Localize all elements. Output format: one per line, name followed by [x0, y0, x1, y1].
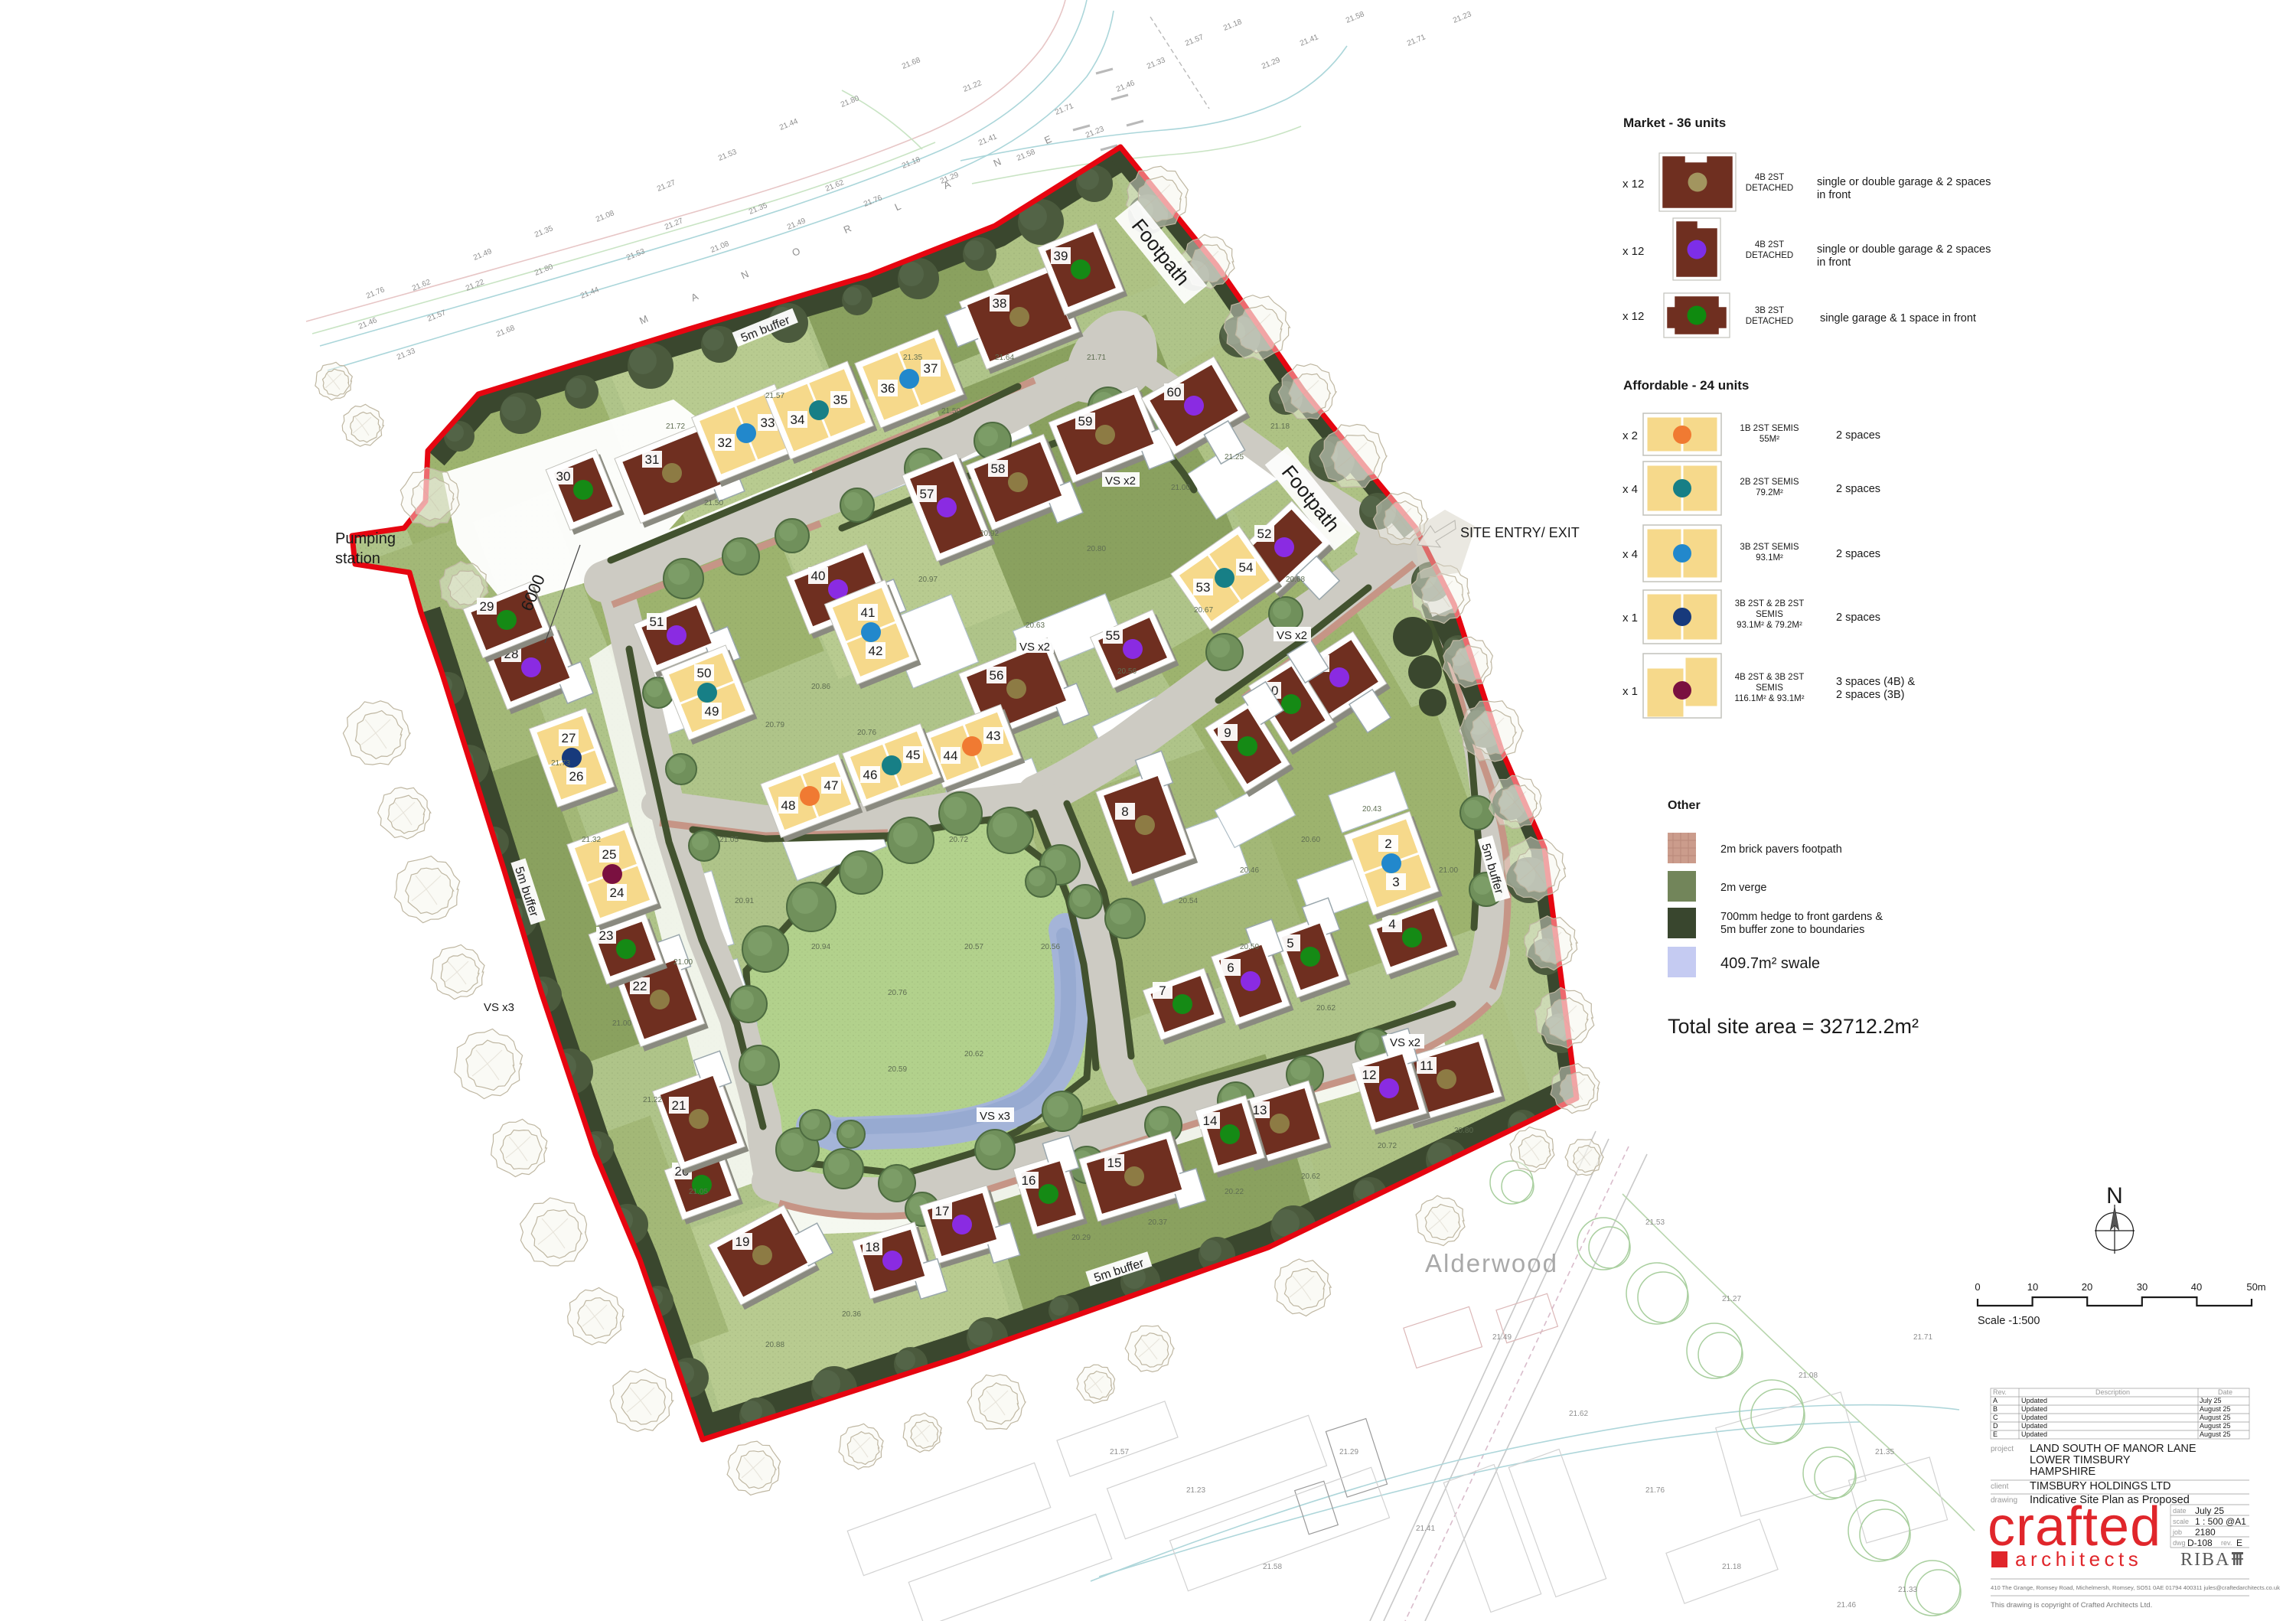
svg-text:x 4: x 4	[1623, 483, 1638, 496]
svg-text:20: 20	[2082, 1281, 2092, 1293]
svg-text:RIBA: RIBA	[2180, 1550, 2230, 1570]
svg-text:21.08: 21.08	[595, 209, 616, 224]
svg-text:5: 5	[1287, 936, 1293, 951]
svg-text:20.22: 20.22	[1225, 1188, 1244, 1196]
svg-text:48: 48	[781, 798, 796, 813]
svg-text:VS x2: VS x2	[1390, 1036, 1420, 1049]
svg-text:20.43: 20.43	[1362, 805, 1381, 814]
svg-text:August 25: August 25	[2200, 1405, 2231, 1413]
svg-text:21.00: 21.00	[673, 958, 693, 967]
svg-text:2 spaces: 2 spaces	[1836, 483, 1880, 495]
svg-text:21.25: 21.25	[1225, 453, 1244, 462]
svg-text:21.49: 21.49	[472, 247, 494, 263]
svg-text:4B 2ST: 4B 2ST	[1755, 240, 1784, 250]
svg-text:July 25: July 25	[2195, 1505, 2224, 1516]
svg-text:21.18: 21.18	[1222, 18, 1244, 33]
svg-text:VS x2: VS x2	[1105, 475, 1136, 488]
svg-text:24: 24	[610, 886, 625, 900]
svg-text:4B 2ST & 3B 2ST: 4B 2ST & 3B 2ST	[1735, 673, 1805, 682]
svg-text:20.56: 20.56	[1117, 667, 1137, 676]
svg-text:in front: in front	[1817, 256, 1851, 269]
svg-text:700mm hedge to front gardens &: 700mm hedge to front gardens &	[1720, 911, 1883, 923]
svg-text:LOWER TIMSBURY: LOWER TIMSBURY	[2030, 1454, 2131, 1466]
svg-text:21.00: 21.00	[1171, 484, 1190, 492]
svg-text:E: E	[2236, 1538, 2242, 1548]
svg-text:SITE ENTRY/ EXIT: SITE ENTRY/ EXIT	[1460, 525, 1580, 540]
svg-text:21.53: 21.53	[717, 148, 739, 163]
svg-text:20.97: 20.97	[918, 576, 938, 584]
svg-text:33: 33	[761, 416, 775, 430]
svg-text:VS x3: VS x3	[484, 1001, 514, 1014]
svg-text:41: 41	[861, 605, 876, 620]
svg-text:21.62: 21.62	[1569, 1410, 1588, 1418]
svg-text:Updated: Updated	[2021, 1414, 2047, 1421]
svg-text:23: 23	[599, 928, 614, 943]
svg-text:15: 15	[1107, 1156, 1122, 1170]
svg-text:August 25: August 25	[2200, 1414, 2231, 1421]
svg-text:21.80: 21.80	[533, 263, 555, 278]
svg-text:This drawing is copyright of C: This drawing is copyright of Crafted Arc…	[1991, 1601, 2152, 1610]
svg-text:TIMSBURY HOLDINGS LTD: TIMSBURY HOLDINGS LTD	[2030, 1480, 2171, 1492]
svg-text:Scale -1:500: Scale -1:500	[1978, 1315, 2040, 1327]
svg-text:11: 11	[1420, 1058, 1433, 1073]
svg-text:21.32: 21.32	[582, 836, 601, 844]
svg-text:20.62: 20.62	[1316, 1004, 1336, 1013]
svg-text:21.46: 21.46	[357, 316, 379, 331]
svg-text:2B 2ST SEMIS: 2B 2ST SEMIS	[1740, 478, 1799, 487]
svg-text:21.41: 21.41	[1299, 33, 1320, 48]
svg-text:x 4: x 4	[1623, 548, 1638, 561]
svg-text:2: 2	[1384, 837, 1391, 851]
svg-text:21.71: 21.71	[1054, 102, 1075, 117]
svg-text:C: C	[1993, 1414, 1998, 1421]
svg-text:2m brick pavers footpath: 2m brick pavers footpath	[1720, 843, 1842, 856]
svg-text:55: 55	[1106, 628, 1120, 643]
svg-text:scale: scale	[2173, 1518, 2189, 1525]
svg-text:2180: 2180	[2195, 1527, 2216, 1538]
svg-text:10: 10	[2027, 1281, 2038, 1293]
svg-text:Updated: Updated	[2021, 1430, 2047, 1438]
svg-text:July 25: July 25	[2200, 1397, 2222, 1404]
svg-text:20.57: 20.57	[964, 943, 983, 951]
svg-text:A: A	[1993, 1397, 1998, 1404]
svg-text:21.57: 21.57	[1184, 33, 1205, 48]
svg-text:21.80: 21.80	[840, 94, 861, 109]
svg-text:Updated: Updated	[2021, 1405, 2047, 1413]
svg-text:SEMIS: SEMIS	[1756, 610, 1783, 619]
svg-text:40: 40	[811, 569, 826, 583]
svg-text:21.72: 21.72	[666, 422, 685, 431]
svg-text:x 12: x 12	[1623, 310, 1644, 323]
svg-text:1B 2ST SEMIS: 1B 2ST SEMIS	[1740, 424, 1799, 433]
svg-text:DETACHED: DETACHED	[1746, 251, 1793, 260]
svg-text:410 The Grange, Romsey Road,: 410 The Grange, Romsey Road, Michelmersh…	[1991, 1584, 2280, 1591]
svg-text:4B 2ST: 4B 2ST	[1755, 173, 1784, 182]
svg-text:20.80: 20.80	[1087, 545, 1106, 553]
svg-text:August 25: August 25	[2200, 1422, 2231, 1430]
svg-text:18: 18	[866, 1240, 880, 1254]
svg-text:VS x2: VS x2	[1019, 641, 1050, 654]
svg-text:single garage & 1 space in fro: single garage & 1 space in front	[1820, 312, 1976, 325]
svg-text:21.58: 21.58	[1345, 10, 1366, 25]
svg-text:46: 46	[863, 768, 878, 782]
svg-text:12: 12	[1362, 1068, 1377, 1082]
svg-text:1 : 500 @A1: 1 : 500 @A1	[2195, 1516, 2246, 1527]
svg-text:B: B	[1993, 1405, 1998, 1413]
svg-text:21.53: 21.53	[625, 247, 647, 263]
svg-text:20.94: 20.94	[811, 943, 830, 951]
svg-text:55M²: 55M²	[1760, 435, 1779, 444]
svg-text:50m: 50m	[2246, 1281, 2265, 1293]
svg-text:93.1M²: 93.1M²	[1756, 553, 1783, 563]
svg-text:D: D	[1993, 1422, 1998, 1430]
svg-text:3B 2ST & 2B 2ST: 3B 2ST & 2B 2ST	[1735, 599, 1805, 608]
svg-text:6: 6	[1227, 961, 1234, 975]
svg-text:17: 17	[935, 1204, 950, 1218]
svg-text:architects: architects	[2015, 1548, 2142, 1570]
svg-text:49: 49	[705, 704, 719, 719]
svg-text:station: station	[335, 550, 380, 567]
svg-text:21.44: 21.44	[778, 117, 800, 132]
svg-text:25: 25	[602, 847, 617, 862]
svg-text:20.63: 20.63	[1026, 621, 1045, 630]
svg-text:date: date	[2173, 1507, 2187, 1515]
svg-text:21.35: 21.35	[533, 224, 555, 240]
svg-text:20.60: 20.60	[1301, 836, 1320, 844]
svg-text:29: 29	[480, 599, 494, 614]
svg-text:26: 26	[569, 769, 584, 784]
svg-text:32: 32	[718, 435, 732, 450]
svg-text:20.29: 20.29	[1071, 1234, 1091, 1242]
svg-text:Market - 36 units: Market - 36 units	[1623, 116, 1726, 130]
svg-text:SEMIS: SEMIS	[1756, 683, 1783, 693]
svg-text:21.50: 21.50	[941, 407, 960, 416]
svg-text:21.49: 21.49	[1492, 1333, 1512, 1342]
svg-text:19: 19	[735, 1235, 750, 1249]
svg-text:30: 30	[556, 469, 571, 484]
svg-text:2m verge: 2m verge	[1720, 882, 1766, 894]
svg-text:44: 44	[944, 749, 958, 763]
svg-text:2 spaces: 2 spaces	[1836, 612, 1880, 624]
svg-text:21.08: 21.08	[1799, 1371, 1818, 1380]
svg-text:20.88: 20.88	[765, 1341, 784, 1349]
svg-text:21.68: 21.68	[901, 56, 922, 71]
svg-text:21.18: 21.18	[901, 155, 922, 171]
svg-text:21.00: 21.00	[612, 1019, 631, 1028]
svg-text:38: 38	[993, 296, 1007, 311]
svg-text:58: 58	[991, 462, 1006, 476]
svg-text:20.46: 20.46	[1240, 866, 1259, 875]
svg-text:Updated: Updated	[2021, 1422, 2047, 1430]
svg-text:21.35: 21.35	[903, 354, 922, 362]
svg-text:57: 57	[920, 487, 934, 501]
svg-text:DETACHED: DETACHED	[1746, 184, 1793, 193]
svg-text:single or double garage & 2 sp: single or double garage & 2 spaces	[1817, 176, 1991, 188]
svg-text:Description: Description	[2095, 1388, 2130, 1396]
svg-text:DETACHED: DETACHED	[1746, 317, 1793, 326]
svg-text:21.41: 21.41	[1416, 1525, 1435, 1533]
svg-text:client: client	[1991, 1482, 2009, 1491]
svg-text:60: 60	[1167, 385, 1182, 400]
svg-text:2 spaces: 2 spaces	[1836, 548, 1880, 560]
svg-text:47: 47	[824, 778, 839, 793]
svg-text:20.62: 20.62	[964, 1050, 983, 1058]
svg-text:Rev.: Rev.	[1993, 1388, 2007, 1396]
svg-text:21.05: 21.05	[719, 836, 739, 844]
svg-text:21.57: 21.57	[426, 308, 448, 324]
svg-text:Updated: Updated	[2021, 1397, 2047, 1404]
svg-text:35: 35	[833, 393, 848, 407]
svg-text:13: 13	[1253, 1103, 1267, 1117]
svg-text:20.72: 20.72	[1378, 1142, 1397, 1150]
svg-text:36: 36	[881, 381, 895, 396]
svg-text:20.72: 20.72	[949, 836, 968, 844]
svg-text:Total site area = 32712.2m²: Total site area = 32712.2m²	[1668, 1015, 1919, 1038]
svg-text:52: 52	[1257, 527, 1272, 541]
svg-text:Affordable - 24 units: Affordable - 24 units	[1623, 378, 1749, 393]
svg-text:x 1: x 1	[1623, 685, 1638, 698]
svg-text:Other: Other	[1668, 799, 1701, 812]
svg-text:x 2: x 2	[1623, 429, 1638, 442]
svg-text:5m buffer zone to boundaries: 5m buffer zone to boundaries	[1720, 924, 1864, 936]
svg-text:21.46: 21.46	[1837, 1601, 1856, 1610]
svg-text:7: 7	[1159, 983, 1166, 998]
svg-text:43: 43	[987, 729, 1001, 743]
svg-text:20.54: 20.54	[1179, 897, 1198, 905]
svg-text:21.68: 21.68	[495, 324, 517, 339]
svg-text:21.64: 21.64	[995, 354, 1014, 362]
svg-text:21.76: 21.76	[863, 194, 884, 209]
svg-text:E: E	[1993, 1430, 1998, 1438]
svg-text:21.71: 21.71	[1087, 354, 1106, 362]
svg-text:30: 30	[2137, 1281, 2148, 1293]
svg-text:job: job	[2172, 1528, 2182, 1536]
svg-text:x 12: x 12	[1623, 245, 1644, 258]
svg-text:21.27: 21.27	[1722, 1295, 1741, 1303]
svg-text:20.68: 20.68	[1286, 576, 1305, 584]
svg-text:21.27: 21.27	[664, 217, 685, 232]
svg-text:59: 59	[1078, 414, 1093, 429]
svg-text:50: 50	[697, 666, 712, 680]
svg-text:20.36: 20.36	[842, 1310, 861, 1319]
svg-text:21.27: 21.27	[656, 178, 677, 194]
svg-text:21.29: 21.29	[1339, 1448, 1358, 1456]
svg-text:20.50: 20.50	[1240, 943, 1259, 951]
svg-text:21.76: 21.76	[365, 285, 386, 301]
svg-text:9: 9	[1224, 726, 1231, 740]
svg-text:56: 56	[990, 668, 1004, 683]
svg-text:21.58: 21.58	[1263, 1563, 1282, 1571]
svg-text:20.91: 20.91	[735, 897, 754, 905]
svg-text:40: 40	[2191, 1281, 2202, 1293]
svg-text:2 spaces (3B): 2 spaces (3B)	[1836, 689, 1904, 701]
svg-text:21.23: 21.23	[1186, 1486, 1205, 1495]
svg-text:dwg: dwg	[2173, 1539, 2186, 1547]
svg-text:Alderwood: Alderwood	[1425, 1249, 1558, 1277]
svg-text:116.1M² & 93.1M²: 116.1M² & 93.1M²	[1734, 694, 1804, 703]
svg-text:21: 21	[672, 1098, 687, 1113]
svg-text:42: 42	[869, 644, 883, 658]
svg-text:in front: in front	[1817, 189, 1851, 201]
svg-text:3 spaces (4B) &: 3 spaces (4B) &	[1836, 676, 1915, 688]
svg-text:20.80: 20.80	[1454, 1127, 1473, 1135]
svg-text:21.41: 21.41	[977, 132, 999, 148]
svg-text:D-108: D-108	[2187, 1538, 2213, 1548]
svg-text:21.62: 21.62	[411, 278, 432, 293]
svg-text:20.37: 20.37	[1148, 1218, 1167, 1227]
svg-text:27: 27	[562, 731, 576, 745]
svg-text:45: 45	[906, 748, 921, 762]
svg-text:VS x2: VS x2	[1277, 629, 1307, 642]
svg-text:51: 51	[650, 615, 664, 629]
svg-text:21.50: 21.50	[704, 499, 723, 507]
svg-text:21.08: 21.08	[709, 240, 731, 255]
svg-text:21.22: 21.22	[962, 79, 983, 94]
svg-text:21.46: 21.46	[1115, 79, 1137, 94]
svg-text:N: N	[2106, 1183, 2123, 1208]
svg-text:21.23: 21.23	[1452, 10, 1473, 25]
svg-text:21.33: 21.33	[1146, 56, 1167, 71]
svg-text:8: 8	[1121, 804, 1128, 819]
svg-text:21.73: 21.73	[551, 759, 570, 768]
svg-text:39: 39	[1054, 249, 1068, 263]
svg-text:20.59: 20.59	[888, 1065, 907, 1074]
svg-text:August 25: August 25	[2200, 1430, 2231, 1438]
svg-text:31: 31	[645, 452, 660, 467]
svg-text:21.29: 21.29	[1261, 56, 1282, 71]
svg-text:4: 4	[1388, 917, 1395, 931]
svg-text:rev.: rev.	[2221, 1539, 2232, 1547]
svg-text:21.18: 21.18	[1722, 1563, 1741, 1571]
svg-text:53: 53	[1196, 580, 1211, 595]
svg-text:21.22: 21.22	[465, 278, 486, 293]
svg-text:20.92: 20.92	[980, 530, 999, 538]
svg-text:20.62: 20.62	[1301, 1173, 1320, 1181]
svg-text:project: project	[1991, 1445, 2014, 1453]
svg-text:0: 0	[1975, 1281, 1980, 1293]
svg-text:37: 37	[924, 361, 938, 376]
svg-text:LAND SOUTH OF MANOR LANE: LAND SOUTH OF MANOR LANE	[2030, 1443, 2197, 1455]
svg-text:Pumping: Pumping	[335, 530, 396, 547]
svg-text:21.57: 21.57	[1110, 1448, 1129, 1456]
svg-text:21.53: 21.53	[1645, 1218, 1665, 1227]
svg-text:20.76: 20.76	[857, 729, 876, 737]
svg-text:21.00: 21.00	[1439, 866, 1458, 875]
svg-text:x 12: x 12	[1623, 178, 1644, 191]
svg-text:20.79: 20.79	[765, 721, 784, 729]
svg-text:3B 2ST SEMIS: 3B 2ST SEMIS	[1740, 543, 1799, 552]
svg-text:3B 2ST: 3B 2ST	[1755, 306, 1784, 315]
svg-text:VS x3: VS x3	[980, 1110, 1010, 1123]
svg-text:HAMPSHIRE: HAMPSHIRE	[2030, 1466, 2096, 1478]
svg-text:20.67: 20.67	[1194, 606, 1213, 615]
svg-text:79.2M²: 79.2M²	[1756, 488, 1783, 497]
svg-text:16: 16	[1022, 1173, 1036, 1188]
svg-text:Date: Date	[2218, 1388, 2232, 1396]
svg-text:21.22: 21.22	[643, 1096, 662, 1104]
svg-text:21.76: 21.76	[1645, 1486, 1665, 1495]
svg-text:20.76: 20.76	[888, 989, 907, 997]
svg-text:single or double garage & 2 sp: single or double garage & 2 spaces	[1817, 243, 1991, 256]
svg-text:34: 34	[791, 413, 805, 427]
svg-text:20.86: 20.86	[811, 683, 830, 691]
svg-text:93.1M² & 79.2M²: 93.1M² & 79.2M²	[1737, 621, 1802, 630]
svg-text:21.33: 21.33	[1898, 1586, 1917, 1594]
svg-text:21.35: 21.35	[1875, 1448, 1894, 1456]
svg-text:21.71: 21.71	[1913, 1333, 1932, 1342]
svg-text:21.05: 21.05	[689, 1188, 708, 1196]
svg-text:54: 54	[1239, 560, 1254, 575]
svg-text:21.18: 21.18	[1270, 422, 1290, 431]
svg-text:3: 3	[1392, 875, 1399, 889]
svg-text:x 1: x 1	[1623, 612, 1638, 625]
svg-text:2 spaces: 2 spaces	[1836, 429, 1880, 442]
svg-text:22: 22	[633, 979, 647, 993]
svg-text:14: 14	[1203, 1114, 1218, 1128]
svg-text:409.7m² swale: 409.7m² swale	[1720, 955, 1820, 972]
svg-text:21.57: 21.57	[765, 392, 784, 400]
svg-text:21.71: 21.71	[1406, 33, 1427, 48]
svg-text:21.44: 21.44	[579, 285, 601, 301]
svg-text:20.56: 20.56	[1041, 943, 1060, 951]
